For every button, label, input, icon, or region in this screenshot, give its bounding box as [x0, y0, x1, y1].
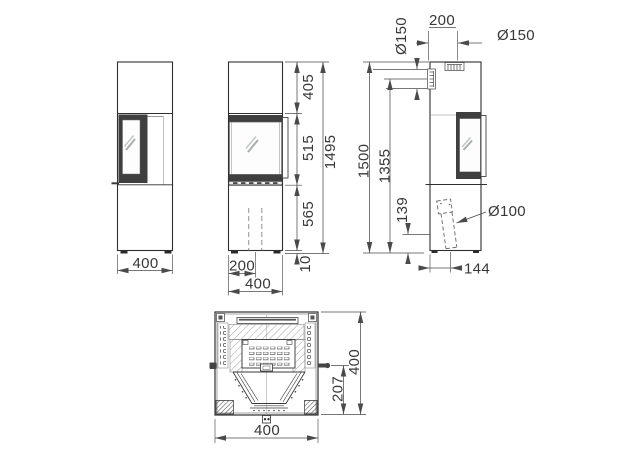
window-frame — [456, 112, 460, 179]
window-top-bar — [456, 112, 481, 119]
window-bottom-bar — [456, 172, 481, 179]
dim-label-bottom-section: 565 — [300, 201, 317, 227]
front-corner-wall — [305, 401, 318, 415]
foot — [432, 251, 438, 254]
technical-drawing-page: 400 — [0, 0, 624, 460]
dim-label-total-height: 1500 — [356, 144, 373, 179]
dim-label-feet: 10 — [297, 255, 314, 272]
dim-label-top-section: 405 — [300, 74, 317, 100]
dim-label-rear-flue-height: 1355 — [377, 149, 394, 184]
door-bottom-bar — [229, 175, 282, 182]
foot — [473, 251, 479, 254]
dim-label-intake-offset: 144 — [464, 261, 490, 278]
dim-label-window-section: 515 — [300, 135, 317, 161]
side-frame-bracket — [283, 118, 289, 179]
dim-side-heights — [363, 62, 430, 264]
dim-label-width: 400 — [245, 276, 271, 293]
rear-flue-collar — [428, 69, 436, 89]
view-side: 200 Ø150 Ø150 1500 1355 139 Ø100 — [356, 12, 535, 278]
door-latch — [318, 364, 326, 368]
dim-label-total-height: 1495 — [322, 135, 339, 170]
dim-intake-offset — [419, 252, 463, 273]
foot — [231, 251, 238, 254]
top-flue-collar — [445, 63, 464, 71]
dim-label-depth: 400 — [346, 349, 363, 375]
dim-label-center-offset: 200 — [229, 258, 255, 275]
dim-label-width: 400 — [254, 422, 280, 439]
dim-label-rear-flue-diameter: Ø150 — [393, 17, 410, 55]
stove-dimension-drawing: 400 — [0, 0, 624, 460]
dim-label-door-offset: 207 — [330, 376, 347, 402]
dim-label-intake-diameter: Ø100 — [488, 203, 526, 220]
door-glass — [230, 122, 282, 175]
dim-label-width: 400 — [133, 255, 159, 272]
front-corner-wall — [216, 401, 234, 415]
foot — [165, 251, 172, 254]
view-top-section: 400 207 400 — [210, 312, 367, 443]
dim-label-top-flue-diameter: Ø150 — [497, 27, 535, 44]
dim-side-top — [416, 28, 482, 61]
view-front-left: 400 — [112, 62, 173, 274]
back-air-plate — [242, 340, 295, 372]
front-frame-bracket — [481, 116, 486, 177]
door-glass — [123, 120, 141, 174]
door-top-bar — [229, 115, 282, 122]
view-front: 405 515 565 10 1495 200 400 — [229, 62, 340, 296]
dim-label-intake-height: 139 — [394, 197, 411, 223]
dim-label-flue-offset: 200 — [429, 12, 455, 29]
foot — [121, 251, 128, 254]
foot — [274, 251, 281, 254]
left-latch — [210, 363, 217, 370]
